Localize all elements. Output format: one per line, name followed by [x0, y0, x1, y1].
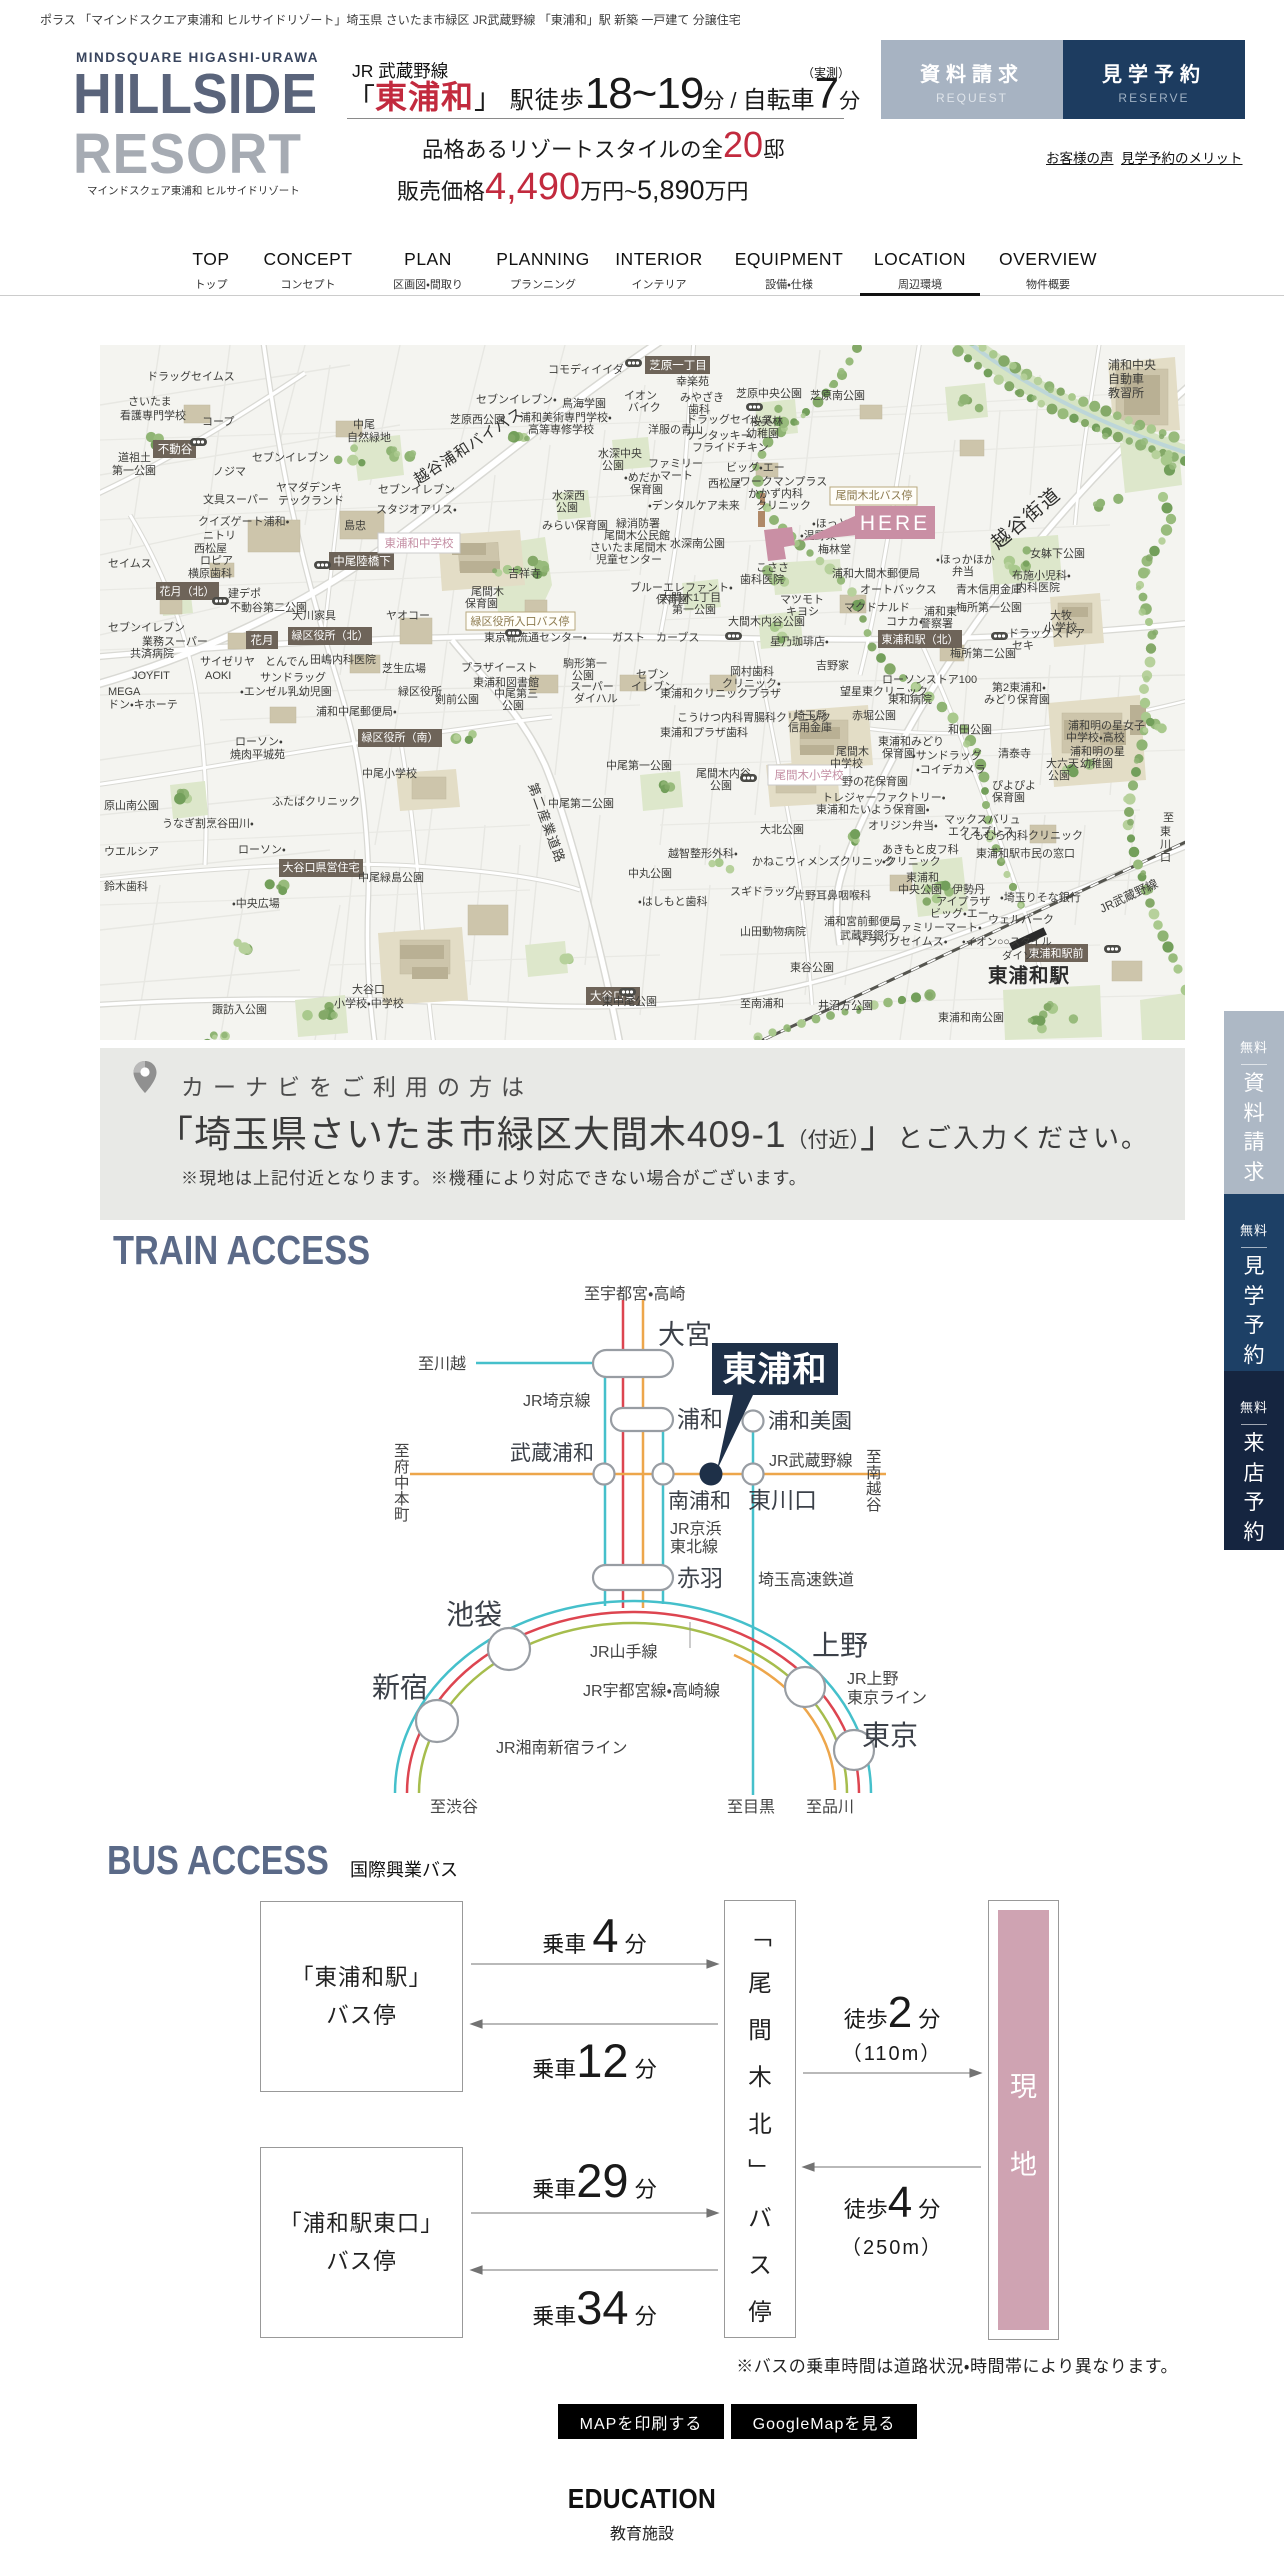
svg-text:東浦和図書館: 東浦和図書館	[473, 675, 539, 689]
svg-text:公園: 公園	[572, 669, 594, 682]
svg-text:至品川: 至品川	[806, 1799, 854, 1816]
svg-text:東京ライン: 東京ライン	[847, 1689, 927, 1707]
svg-text:梅所第一公園: 梅所第一公園	[956, 600, 1022, 614]
svg-text:東浦和: 東浦和	[906, 871, 939, 884]
svg-text:岡村歯科: 岡村歯科	[730, 664, 774, 678]
svg-text:浦和明の星女子: 浦和明の星女子	[1068, 719, 1145, 732]
svg-text:公園: 公園	[602, 459, 624, 472]
svg-text:トレジャーファクトリー・: トレジャーファクトリー・	[822, 791, 946, 804]
svg-text:東浦和たいよう保育園・: 東浦和たいよう保育園・	[816, 802, 930, 816]
svg-text:ぴよぴよ: ぴよぴよ	[992, 779, 1036, 792]
svg-text:浦和中尾郵便局・: 浦和中尾郵便局・	[316, 705, 397, 718]
svg-text:諏訪入公園: 諏訪入公園	[212, 1003, 267, 1016]
svg-text:星乃珈琲店・: 星乃珈琲店・	[770, 635, 829, 648]
svg-text:上野: 上野	[812, 1630, 868, 1661]
svg-text:小学校・中学校: 小学校・中学校	[334, 996, 404, 1010]
svg-text:浦和美園: 浦和美園	[768, 1410, 852, 1433]
svg-text:JR上野: JR上野	[847, 1670, 899, 1688]
svg-text:幼稚園: 幼稚園	[746, 426, 779, 440]
svg-text:ドラッグセイムス: ドラッグセイムス	[147, 369, 235, 383]
svg-text:焼肉平城苑: 焼肉平城苑	[230, 748, 285, 761]
svg-text:原山南公園: 原山南公園	[104, 799, 159, 812]
svg-text:中尾小学校: 中尾小学校	[362, 766, 417, 780]
svg-text:望星東クリニック: 望星東クリニック	[840, 685, 928, 698]
svg-text:中尾陸橋下: 中尾陸橋下	[333, 554, 391, 568]
svg-text:JR山手線: JR山手線	[590, 1643, 658, 1661]
svg-text:ブルーエレファント・: ブルーエレファント・	[630, 580, 733, 594]
svg-text:うなぎ割烹谷田川・: うなぎ割烹谷田川・	[162, 816, 254, 830]
svg-text:・イオン○○スタイル: ・イオン○○スタイル	[962, 936, 1052, 948]
svg-text:保育園: 保育園	[882, 746, 915, 760]
svg-text:西松屋: 西松屋	[194, 541, 227, 555]
svg-text:池袋: 池袋	[446, 1599, 502, 1630]
svg-text:JR武蔵野線: JR武蔵野線	[769, 1452, 853, 1470]
svg-text:浦和中央: 浦和中央	[1108, 357, 1156, 372]
svg-text:浦和美術専門学校・: 浦和美術専門学校・	[520, 410, 612, 424]
svg-text:テックランド: テックランド	[278, 494, 344, 507]
svg-text:ロピア: ロピア	[200, 554, 233, 567]
svg-text:JOYFIT: JOYFIT	[132, 670, 170, 682]
svg-text:至南越谷: 至南越谷	[866, 1449, 882, 1514]
svg-text:新宿: 新宿	[372, 1672, 428, 1703]
svg-text:ウエルシア: ウエルシア	[104, 845, 159, 858]
svg-text:幸楽苑: 幸楽苑	[676, 375, 709, 388]
svg-text:道祖土: 道祖土	[118, 450, 151, 464]
svg-text:赤羽: 赤羽	[677, 1565, 723, 1591]
svg-text:ファミリー: ファミリー	[648, 458, 703, 470]
svg-text:芝原一丁目: 芝原一丁目	[649, 359, 707, 372]
svg-text:尾間木北バス停: 尾間木北バス停	[836, 489, 913, 502]
svg-text:セキ: セキ	[1012, 639, 1034, 652]
svg-text:セブンイレブン: セブンイレブン	[252, 450, 329, 464]
svg-text:みらい保育園: みらい保育園	[542, 518, 608, 532]
svg-text:さいたま: さいたま	[128, 395, 172, 408]
svg-text:MEGA: MEGA	[108, 686, 141, 698]
svg-text:尾間木: 尾間木	[471, 585, 504, 598]
svg-text:コモディイイダ: コモディイイダ	[548, 362, 624, 376]
svg-text:至渋谷: 至渋谷	[430, 1798, 478, 1816]
svg-text:業務スーパー: 業務スーパー	[142, 634, 208, 648]
svg-text:水深西: 水深西	[552, 489, 585, 502]
svg-text:みどり保育園: みどり保育園	[984, 692, 1050, 706]
svg-text:公園: 公園	[556, 501, 578, 514]
svg-text:ニトリ: ニトリ	[203, 530, 236, 542]
svg-text:プラザイースト: プラザイースト	[461, 661, 537, 674]
svg-text:和田公園: 和田公園	[948, 723, 992, 736]
svg-text:東谷公園: 東谷公園	[790, 961, 834, 974]
svg-text:緑区役所入口バス停: 緑区役所入口バス停	[471, 614, 570, 628]
svg-text:自動車: 自動車	[1108, 372, 1144, 386]
svg-text:看護専門学校: 看護専門学校	[120, 408, 186, 422]
svg-text:信用金庫: 信用金庫	[788, 720, 832, 734]
svg-text:バイク: バイク	[628, 401, 661, 414]
svg-text:さいたま尾間木: さいたま尾間木	[590, 541, 667, 554]
svg-text:鈴木歯科: 鈴木歯科	[104, 879, 148, 893]
svg-text:AOKI: AOKI	[205, 670, 231, 682]
svg-text:吉野家: 吉野家	[816, 658, 849, 672]
svg-text:児童センター: 児童センター	[596, 553, 662, 566]
svg-text:クリニック・: クリニック・	[722, 677, 781, 690]
svg-text:ケンタッキー: ケンタッキー	[686, 429, 752, 442]
svg-text:東浦和南公園: 東浦和南公園	[938, 1011, 1004, 1024]
svg-text:ふたばクリニック: ふたばクリニック	[272, 795, 360, 808]
svg-text:芝原中央公園: 芝原中央公園	[736, 387, 802, 400]
svg-text:至: 至	[1163, 812, 1174, 824]
svg-text:・めだか: ・めだか	[624, 471, 661, 484]
svg-text:東: 東	[1160, 825, 1171, 838]
svg-text:第2東浦和・: 第2東浦和・	[992, 680, 1046, 694]
svg-text:緑消防署: 緑消防署	[616, 516, 660, 530]
svg-text:ローソンストア100: ローソンストア100	[882, 674, 977, 686]
svg-text:島忠: 島忠	[344, 518, 366, 532]
svg-text:至宇都宮・高崎: 至宇都宮・高崎	[584, 1285, 685, 1303]
svg-text:水深南公園: 水深南公園	[670, 537, 725, 550]
svg-text:井沼方公園: 井沼方公園	[818, 998, 873, 1012]
svg-text:梅所第二公園: 梅所第二公園	[950, 646, 1016, 660]
svg-text:JR宇都宮線・高崎線: JR宇都宮線・高崎線	[583, 1682, 720, 1700]
svg-text:埼玉縣: 埼玉縣	[794, 708, 827, 722]
svg-text:小学校: 小学校	[1044, 620, 1077, 634]
svg-text:セブンイレブン・: セブンイレブン・	[476, 392, 557, 406]
svg-text:・はしもと歯科: ・はしもと歯科	[638, 894, 708, 908]
svg-text:マックスバリュ: マックスバリュ	[944, 813, 1021, 826]
svg-text:あきもと皮フ科: あきもと皮フ科	[882, 842, 959, 856]
svg-text:サンドラッグ: サンドラッグ	[260, 670, 326, 684]
svg-text:JR埼京線: JR埼京線	[523, 1392, 591, 1410]
svg-text:吉祥寺: 吉祥寺	[508, 566, 541, 580]
svg-text:・デンタルケア未来: ・デンタルケア未来	[648, 498, 740, 512]
svg-text:花月（北）: 花月（北）	[160, 585, 215, 598]
svg-text:東川口: 東川口	[748, 1487, 817, 1513]
svg-text:保育園: 保育園	[992, 790, 1025, 804]
svg-text:田嶋内科医院: 田嶋内科医院	[310, 652, 376, 666]
svg-text:かかず内科: かかず内科	[748, 486, 803, 500]
svg-text:東浦和: 東浦和	[723, 1351, 828, 1389]
svg-text:・中央広場: ・中央広場	[232, 897, 280, 910]
svg-text:スギドラッグ: スギドラッグ	[730, 884, 796, 898]
svg-text:東浦和中学校: 東浦和中学校	[385, 536, 454, 550]
svg-text:中尾: 中尾	[353, 418, 375, 431]
svg-text:コープ: コープ	[202, 415, 234, 428]
svg-text:オートバックス: オートバックス	[860, 583, 937, 596]
svg-text:大谷口県営住宅: 大谷口県営住宅	[283, 860, 360, 874]
svg-text:尾間木公民館: 尾間木公民館	[604, 529, 670, 542]
svg-text:ローソン・: ローソン・	[235, 736, 283, 748]
svg-text:東浦和駅（北）: 東浦和駅（北）	[882, 633, 959, 646]
svg-text:・埼玉りそな銀行: ・埼玉りそな銀行	[1000, 890, 1081, 904]
svg-text:JR湘南新宿ライン: JR湘南新宿ライン	[496, 1739, 628, 1757]
svg-text:・エンゼル乳幼児園: ・エンゼル乳幼児園	[240, 685, 332, 698]
svg-text:保育園: 保育園	[465, 596, 498, 610]
svg-text:・ワークマンプラス: ・ワークマンプラス	[736, 475, 827, 488]
svg-text:至南浦和: 至南浦和	[740, 997, 784, 1010]
svg-text:東中尾公園: 東中尾公園	[602, 995, 657, 1008]
svg-text:セブンイレブン: セブンイレブン	[108, 620, 185, 634]
svg-text:ビッグ・エー: ビッグ・エー	[726, 460, 785, 474]
svg-text:ローソン・: ローソン・	[238, 844, 286, 856]
svg-text:武蔵野銀行: 武蔵野銀行	[840, 928, 895, 942]
svg-text:第一公園: 第一公園	[112, 463, 156, 477]
svg-text:ドン・キホーテ: ドン・キホーテ	[108, 698, 178, 711]
svg-text:共済病院: 共済病院	[130, 647, 174, 660]
svg-text:コナカ・: コナカ・	[886, 615, 923, 628]
svg-text:大六天: 大六天	[1046, 756, 1079, 770]
svg-text:HERE: HERE	[860, 512, 930, 535]
svg-text:至目黒: 至目黒	[727, 1799, 775, 1816]
svg-text:ヤオコー: ヤオコー	[386, 609, 430, 622]
svg-text:ヤマダデンキ: ヤマダデンキ	[276, 480, 342, 494]
svg-text:保育園: 保育園	[656, 592, 689, 606]
svg-text:建デポ: 建デポ	[228, 586, 261, 600]
svg-text:中尾第二公園: 中尾第二公園	[548, 796, 614, 810]
svg-text:・サンドラッグ: ・サンドラッグ	[912, 748, 982, 762]
svg-text:清泰寺: 清泰寺	[998, 746, 1031, 760]
svg-text:スタジオアリス・: スタジオアリス・	[376, 503, 457, 516]
svg-text:クリニック: クリニック	[756, 499, 811, 512]
svg-text:マツモト: マツモト	[780, 594, 824, 606]
svg-text:中央公園: 中央公園	[898, 883, 942, 896]
svg-text:山田動物病院: 山田動物病院	[740, 924, 806, 938]
svg-text:ファミリーマート・: ファミリーマート・	[890, 922, 982, 934]
svg-text:芝生広場: 芝生広場	[382, 661, 426, 675]
svg-text:中学校・高校: 中学校・高校	[1066, 730, 1125, 744]
svg-text:フライドチキン: フライドチキン	[692, 441, 769, 454]
svg-text:セイムス: セイムス	[108, 557, 152, 570]
svg-text:公園: 公園	[502, 699, 524, 712]
svg-text:幼稚園: 幼稚園	[1080, 756, 1113, 770]
svg-text:大川家具: 大川家具	[292, 608, 336, 622]
svg-text:大牧: 大牧	[1050, 608, 1072, 622]
svg-text:東北線: 東北線	[670, 1538, 718, 1556]
svg-text:中尾緑島公園: 中尾緑島公園	[358, 870, 424, 884]
svg-text:南浦和: 南浦和	[668, 1490, 731, 1513]
svg-text:武蔵浦和: 武蔵浦和	[510, 1442, 594, 1465]
svg-text:梅林堂: 梅林堂	[818, 542, 851, 556]
svg-text:みやざき: みやざき	[680, 390, 724, 404]
svg-text:アイプラザ: アイプラザ	[936, 895, 990, 908]
svg-text:・ほっかほか: ・ほっかほか	[936, 553, 995, 566]
svg-text:エクスプレス: エクスプレス	[948, 825, 1014, 838]
svg-text:カーブス: カーブス	[656, 630, 699, 644]
svg-text:マート: マート	[660, 470, 693, 482]
svg-text:マクドナルド: マクドナルド	[844, 601, 910, 614]
svg-text:川: 川	[1160, 839, 1171, 851]
svg-text:かねこウィメンズクリニック: かねこウィメンズクリニック	[752, 854, 895, 868]
svg-text:ビッグ・エー: ビッグ・エー	[930, 906, 989, 920]
svg-text:緑区役所（南）: 緑区役所（南）	[362, 730, 439, 744]
svg-text:東浦和プラザ歯科: 東浦和プラザ歯科	[660, 725, 748, 739]
svg-text:サイゼリヤ: サイゼリヤ	[200, 655, 255, 668]
svg-text:ダイハル: ダイハル	[574, 691, 618, 705]
svg-text:口: 口	[1160, 852, 1171, 864]
svg-text:ウェルパーク: ウェルパーク	[988, 913, 1054, 926]
svg-text:中尾第三: 中尾第三	[494, 686, 538, 700]
svg-text:公園: 公園	[710, 779, 732, 792]
svg-text:クイズゲート浦和・: クイズゲート浦和・	[198, 514, 290, 528]
svg-text:片野耳鼻咽喉科: 片野耳鼻咽喉科	[794, 888, 871, 902]
svg-text:東京: 東京	[862, 1720, 918, 1751]
svg-text:公園: 公園	[1048, 769, 1070, 782]
svg-text:文具スーパー: 文具スーパー	[203, 492, 269, 506]
svg-text:伊勢丹: 伊勢丹	[952, 882, 985, 896]
svg-text:剣前公園: 剣前公園	[435, 692, 479, 706]
svg-text:東浦和駅: 東浦和駅	[988, 964, 1070, 987]
svg-text:花月: 花月	[251, 634, 274, 647]
svg-text:浦和明の星: 浦和明の星	[1070, 745, 1125, 758]
svg-text:至川越: 至川越	[418, 1355, 466, 1373]
svg-text:埼玉高速鉄道: 埼玉高速鉄道	[758, 1571, 854, 1589]
svg-text:東京靴流通センター・: 東京靴流通センター・	[484, 630, 587, 644]
svg-text:浦和: 浦和	[677, 1406, 723, 1432]
svg-text:青木信用金庫: 青木信用金庫	[956, 582, 1022, 596]
svg-text:女躰下公園: 女躰下公園	[1030, 546, 1085, 560]
svg-text:セブン: セブン	[636, 667, 669, 681]
svg-text:浦和大間木郵便局: 浦和大間木郵便局	[832, 566, 920, 580]
svg-text:駒形第一: 駒形第一	[563, 656, 607, 670]
svg-text:イオン: イオン	[624, 389, 657, 402]
svg-text:芝原南公園: 芝原南公園	[810, 389, 865, 402]
svg-text:中尾第一公園: 中尾第一公園	[606, 758, 672, 772]
svg-text:越智整形外科・: 越智整形外科・	[668, 846, 738, 860]
svg-text:東浦和みどり: 東浦和みどり	[878, 735, 944, 748]
svg-text:大宮: 大宮	[658, 1320, 712, 1350]
svg-text:・クリニック: ・クリニック	[882, 855, 941, 868]
svg-text:大北公園: 大北公園	[760, 822, 804, 836]
svg-text:弁当: 弁当	[952, 564, 974, 578]
svg-text:自然緑地: 自然緑地	[347, 430, 391, 444]
svg-text:とんでん: とんでん	[265, 655, 308, 668]
svg-text:こささ: こささ	[756, 561, 789, 574]
svg-text:尾間木: 尾間木	[836, 745, 869, 758]
svg-text:中学校: 中学校	[830, 756, 863, 770]
svg-text:浦和東: 浦和東	[924, 605, 957, 618]
svg-text:布施小児科・: 布施小児科・	[1012, 568, 1071, 582]
svg-text:大谷口: 大谷口	[352, 982, 385, 996]
svg-text:警察署: 警察署	[920, 616, 953, 630]
svg-text:歯科医院: 歯科医院	[740, 572, 784, 586]
svg-text:オリジン弁当・: オリジン弁当・	[868, 818, 938, 832]
svg-text:大間木内谷公園: 大間木内谷公園	[728, 614, 805, 628]
svg-text:中丸公園: 中丸公園	[628, 867, 672, 880]
svg-text:保育園: 保育園	[630, 482, 663, 496]
svg-text:JR京浜: JR京浜	[670, 1520, 722, 1538]
svg-text:内科医院: 内科医院	[1016, 580, 1060, 594]
svg-text:ガスト: ガスト	[612, 631, 645, 644]
svg-text:教習所: 教習所	[1108, 385, 1144, 400]
svg-text:鳥海学園: 鳥海学園	[562, 396, 606, 410]
svg-text:高等専修学校: 高等専修学校	[528, 422, 594, 436]
svg-text:東浦和駅市民の窓口: 東浦和駅市民の窓口	[976, 847, 1075, 860]
svg-text:緑区役所（北）: 緑区役所（北）	[292, 628, 369, 642]
svg-text:・コイデカメラ: ・コイデカメラ	[916, 762, 986, 776]
svg-text:野の花保育園: 野の花保育園	[842, 774, 908, 788]
svg-text:ノジマ: ノジマ	[213, 466, 246, 478]
svg-text:浦和宮前郵便局: 浦和宮前郵便局	[824, 914, 901, 928]
svg-text:水深中央: 水深中央	[598, 447, 642, 460]
svg-text:尾間木小学校: 尾間木小学校	[775, 768, 844, 782]
svg-text:桜美林: 桜美林	[750, 414, 783, 428]
svg-text:赤堀公園: 赤堀公園	[852, 709, 896, 722]
svg-text:至府中本町: 至府中本町	[394, 1443, 410, 1524]
svg-text:横原歯科: 横原歯科	[188, 566, 232, 580]
svg-text:歯科: 歯科	[688, 402, 710, 416]
svg-text:ダイソー: ダイソー	[1002, 949, 1044, 962]
svg-text:不動谷: 不動谷	[158, 442, 193, 456]
